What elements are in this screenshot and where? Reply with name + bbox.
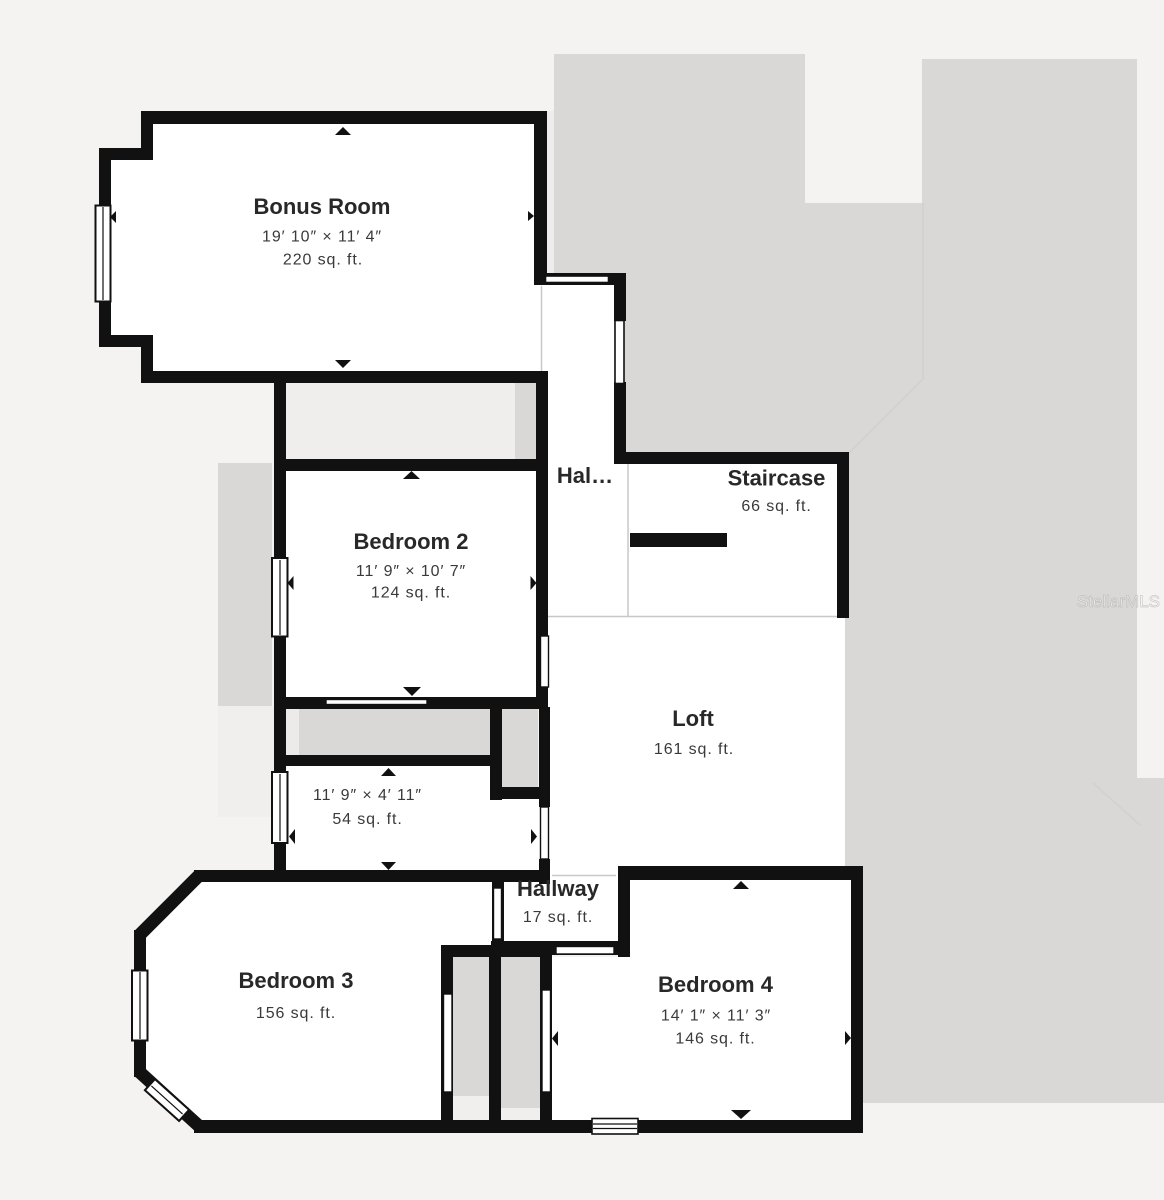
svg-text:11′ 9″ × 10′ 7″: 11′ 9″ × 10′ 7″ <box>356 563 466 580</box>
svg-text:Hal…: Hal… <box>557 463 613 488</box>
svg-text:54 sq. ft.: 54 sq. ft. <box>332 811 402 828</box>
svg-text:124 sq. ft.: 124 sq. ft. <box>371 585 451 602</box>
svg-text:17 sq. ft.: 17 sq. ft. <box>523 909 593 926</box>
svg-text:14′ 1″ × 11′ 3″: 14′ 1″ × 11′ 3″ <box>661 1008 771 1025</box>
svg-text:220 sq. ft.: 220 sq. ft. <box>283 252 363 269</box>
svg-text:Hallway: Hallway <box>517 876 600 901</box>
svg-text:161 sq. ft.: 161 sq. ft. <box>654 741 734 758</box>
svg-text:Bedroom 2: Bedroom 2 <box>354 529 469 554</box>
svg-text:146 sq. ft.: 146 sq. ft. <box>675 1031 755 1048</box>
svg-text:Bedroom 4: Bedroom 4 <box>658 972 774 997</box>
svg-text:11′ 9″ × 4′ 11″: 11′ 9″ × 4′ 11″ <box>313 787 422 804</box>
svg-text:Bonus Room: Bonus Room <box>254 194 391 219</box>
svg-text:66 sq. ft.: 66 sq. ft. <box>741 498 811 515</box>
svg-text:StellarMLS: StellarMLS <box>1077 592 1160 611</box>
svg-text:Loft: Loft <box>672 706 714 731</box>
svg-text:19′ 10″ × 11′ 4″: 19′ 10″ × 11′ 4″ <box>262 229 382 246</box>
svg-text:Bedroom 3: Bedroom 3 <box>239 968 354 993</box>
svg-text:156 sq. ft.: 156 sq. ft. <box>256 1005 336 1022</box>
svg-text:Staircase: Staircase <box>728 466 826 491</box>
